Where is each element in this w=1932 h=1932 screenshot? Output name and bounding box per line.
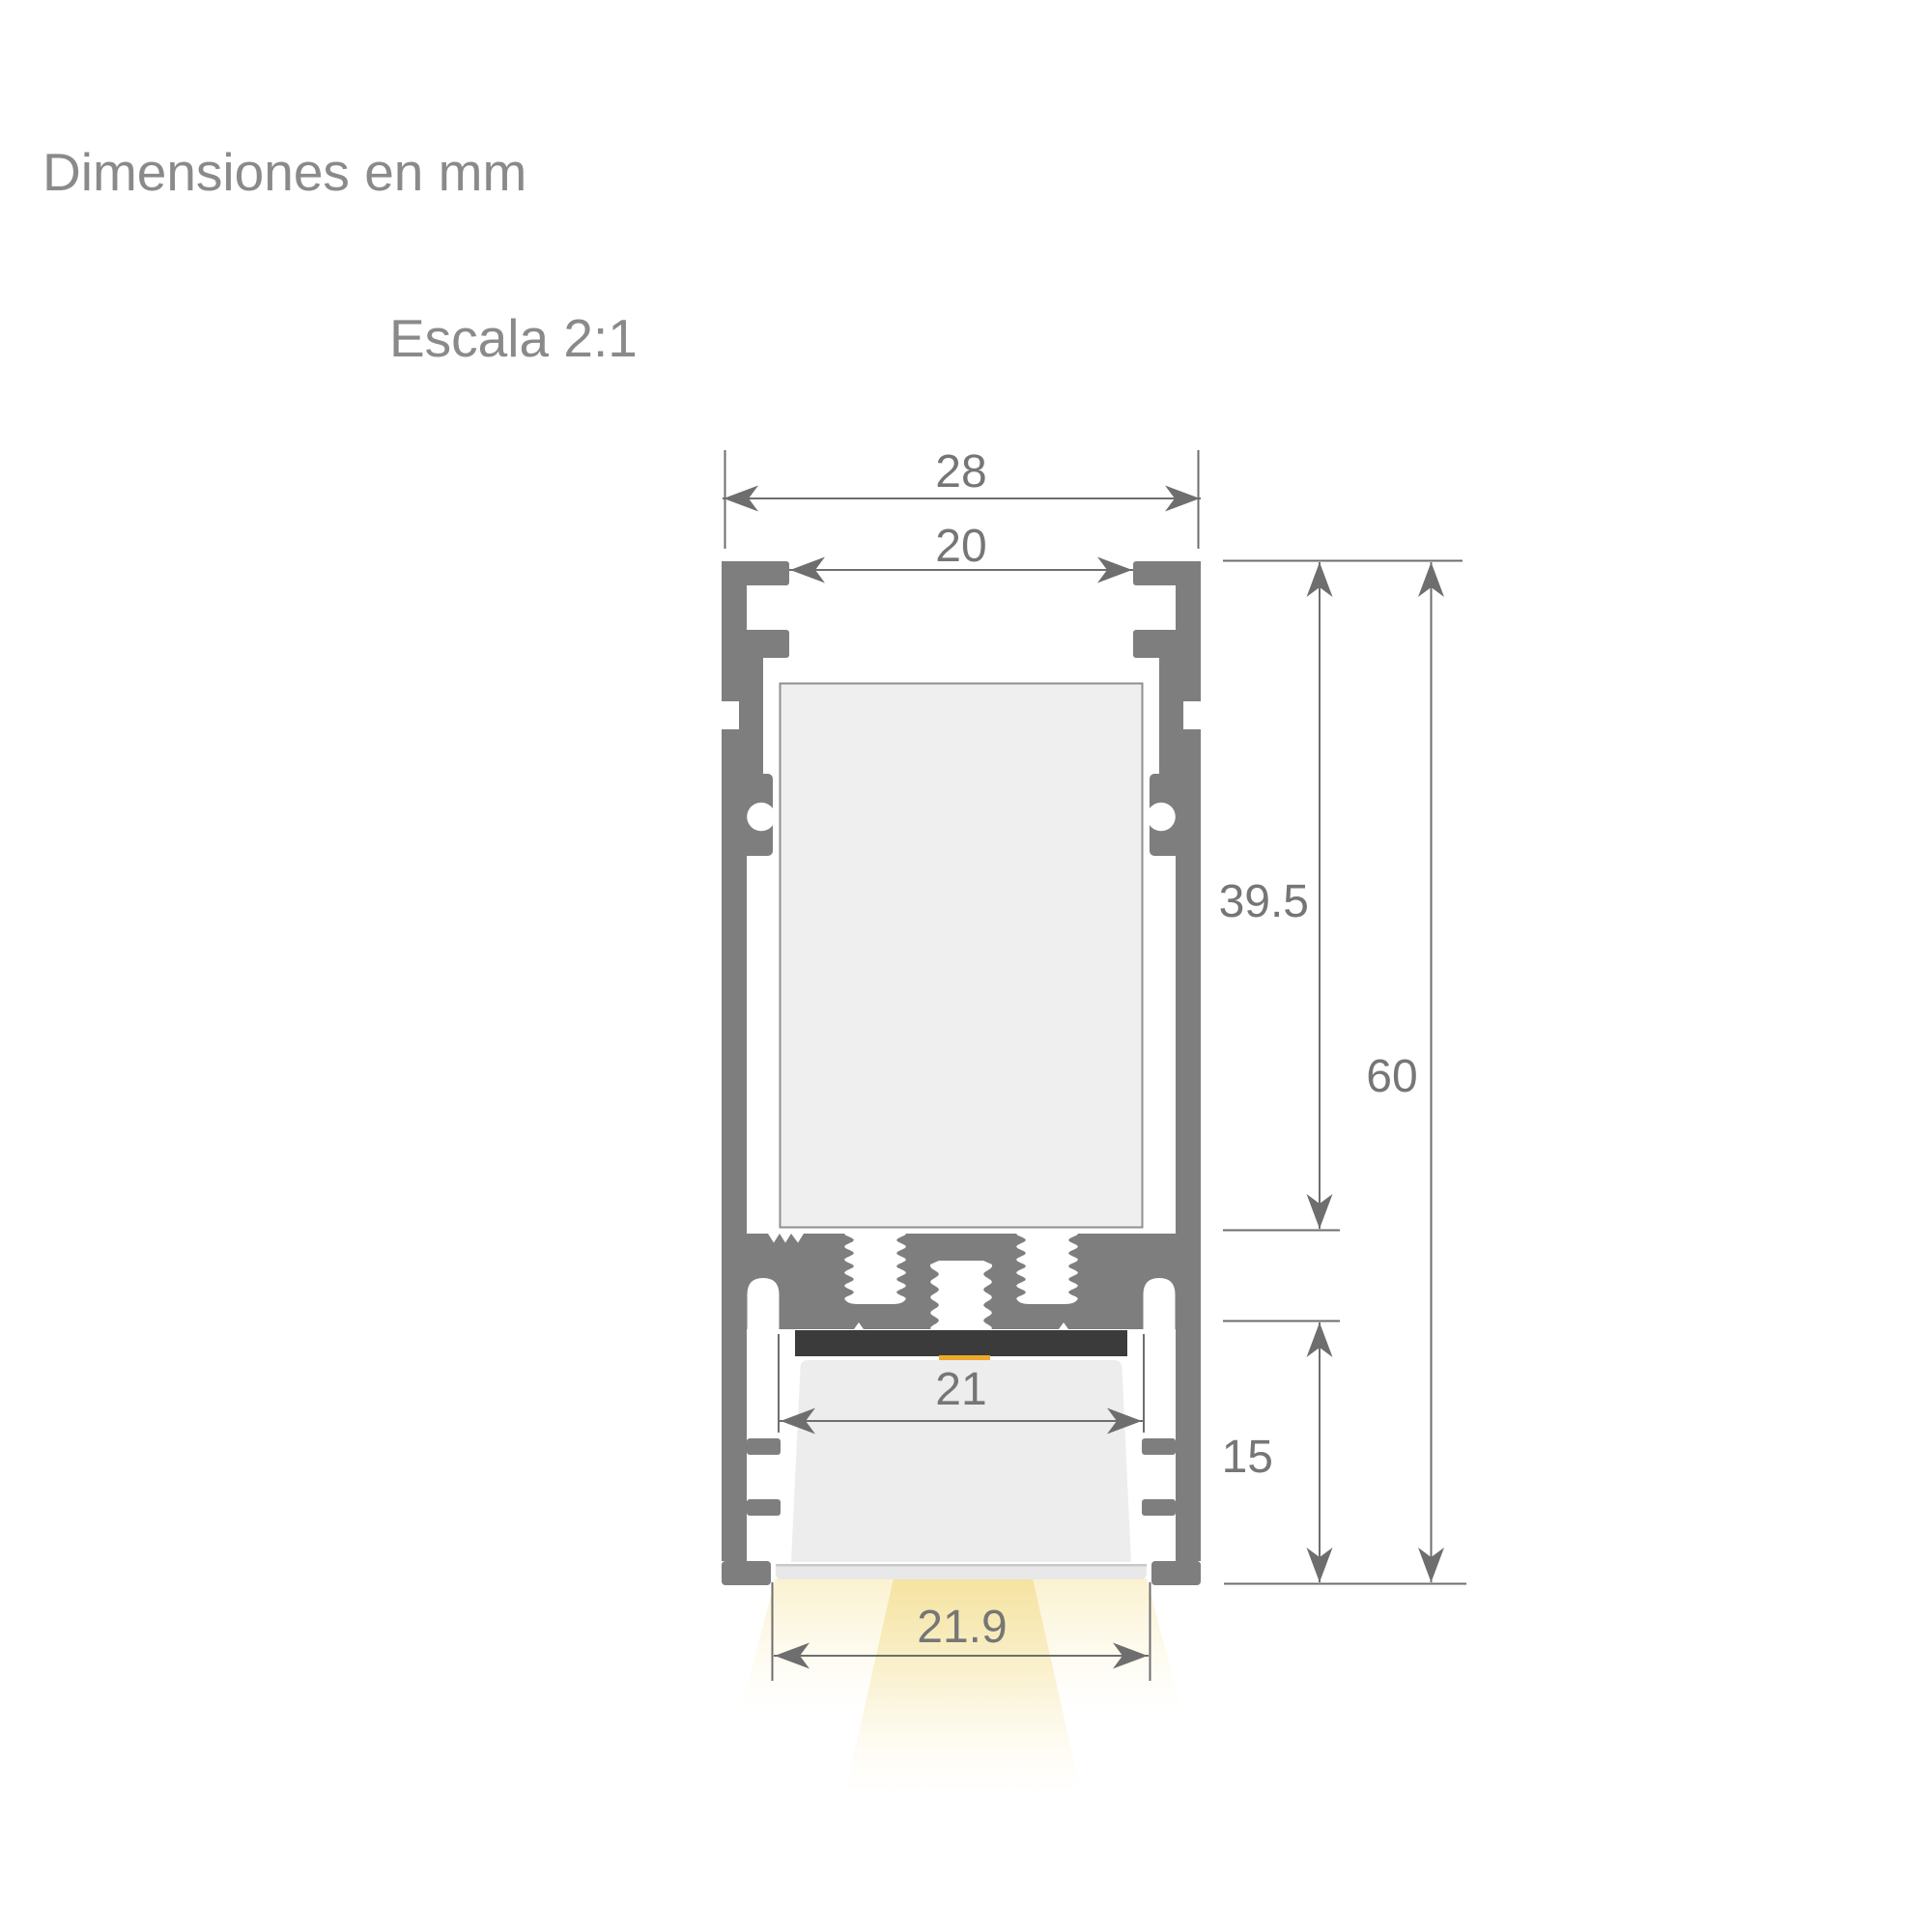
svg-text:20: 20 <box>935 521 986 572</box>
svg-text:Dimensiones en mm: Dimensiones en mm <box>43 142 526 202</box>
svg-text:60: 60 <box>1366 1051 1417 1102</box>
svg-text:21: 21 <box>935 1364 986 1415</box>
svg-text:28: 28 <box>935 446 986 497</box>
svg-text:Escala 2:1: Escala 2:1 <box>389 308 638 368</box>
svg-text:39.5: 39.5 <box>1219 876 1309 927</box>
svg-text:15: 15 <box>1222 1432 1273 1483</box>
svg-text:21.9: 21.9 <box>917 1602 1007 1653</box>
